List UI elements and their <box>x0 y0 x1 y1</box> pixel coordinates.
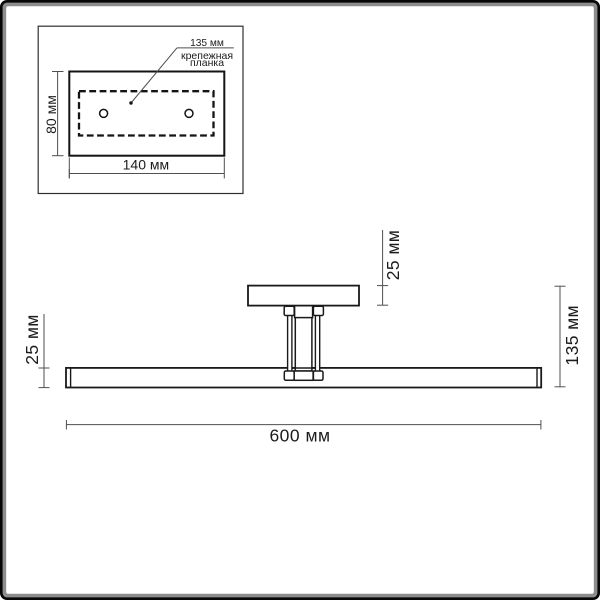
svg-text:600 мм: 600 мм <box>269 425 330 445</box>
svg-text:135 мм: 135 мм <box>190 38 224 49</box>
svg-text:80 мм: 80 мм <box>43 95 59 134</box>
svg-text:25 мм: 25 мм <box>22 314 42 364</box>
svg-text:25 мм: 25 мм <box>383 230 403 280</box>
svg-text:135 мм: 135 мм <box>562 305 582 366</box>
svg-text:планка: планка <box>190 57 224 69</box>
svg-text:140 мм: 140 мм <box>123 156 170 172</box>
